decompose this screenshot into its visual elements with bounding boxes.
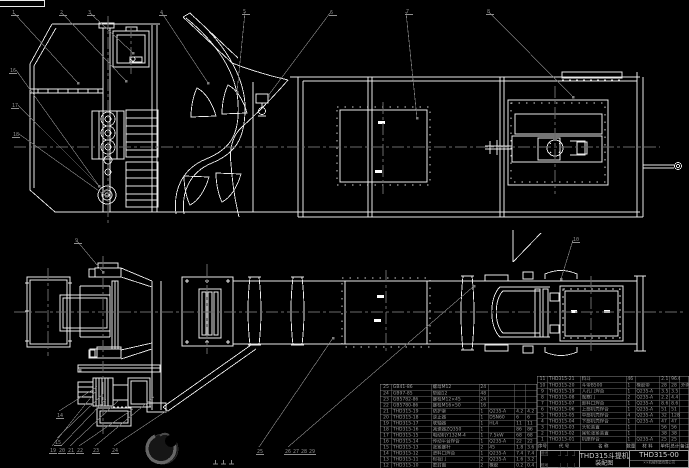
bom-row: 20THD315-18逆止器1DSN6066 [381, 415, 537, 421]
bom-row: 15THD315-13张紧螺杆2451.83.6 [381, 445, 537, 451]
callout-number: 26 [285, 449, 291, 455]
bom-row: 5THD315-05中部机壳焊合4Q235-A32128 [538, 413, 689, 419]
callout-number: 22 [77, 448, 83, 454]
bom-cell: 螺母M12 [431, 385, 479, 391]
border-ticks [213, 460, 234, 464]
bom-row: 3THD315-03头轮装置15656 [538, 425, 689, 431]
bom-cell: THD315-21 [547, 377, 580, 383]
bom-cell: 料斗 [580, 377, 626, 383]
bom-row: 13THD315-11检视门2Q235-A1.63.2 [381, 457, 537, 463]
callout-number: 7 [406, 9, 409, 15]
callout-number: 16 [10, 68, 16, 74]
callout-number: 27 [293, 449, 299, 455]
bom-row: 1THD315-01机座焊合1Q235-A2525 [538, 437, 689, 443]
bom-row: 11THD315-21料斗462.196.6 [538, 377, 689, 383]
bom-cell: 0.4 [526, 463, 537, 468]
sheet-border-corner [0, 0, 45, 7]
callout-number: 14 [57, 413, 63, 419]
bom-cell: 2.1 [660, 377, 670, 383]
bom-cell: 46 [626, 377, 635, 383]
bom-row: 10THD315-20斗带B5001橡胶带2828外购 [538, 383, 689, 389]
bom-cell: 2 [479, 463, 488, 468]
callout-number: 17 [12, 103, 18, 109]
title-main-cell: THD315斗提机 装配图 [579, 451, 630, 467]
callout-number: 19 [50, 448, 56, 454]
signature-cell [572, 451, 575, 456]
cad-drawing-sheet: 1234567891016171814151920212223242526272… [0, 0, 689, 468]
bom-row: 18THD315-16减速器ZQ35018686 [381, 427, 537, 433]
drawing-number: THD315-00 [630, 451, 688, 460]
tail-takeup-section [485, 72, 682, 217]
bom-cell [526, 385, 537, 391]
callout-number: 20 [59, 448, 65, 454]
bom-row: 23GB5782-86螺栓M12×4524 [381, 397, 537, 403]
callout-number: 10 [573, 237, 579, 243]
bom-cell [488, 385, 515, 391]
callout-number: 5 [243, 9, 246, 15]
callout-number: 3 [88, 10, 91, 16]
callout-number: 25 [257, 449, 263, 455]
bom-table-left: 25GB41-86螺母M122424GB97-85垫圈124823GB5782-… [380, 384, 537, 468]
signature-cell [558, 451, 561, 456]
signature-cell: 设计 [541, 451, 548, 456]
callout-number: 2 [60, 10, 63, 16]
callout-number: 6 [330, 10, 333, 16]
bom-cell: 11 [538, 377, 548, 383]
centerlines [14, 16, 686, 434]
callout-number: 28 [301, 449, 307, 455]
bom-cell: 96.6 [670, 377, 680, 383]
callout-number: 18 [13, 132, 19, 138]
bom-row: 4THD315-04下部机壳焊合1Q235-A4747 [538, 419, 689, 425]
bom-cell [635, 377, 660, 383]
bom-row: 2THD315-02尾轮张紧装置13838 [538, 431, 689, 437]
signature-cell [572, 463, 575, 468]
bom-row: 24GB97-85垫圈1248 [381, 391, 537, 397]
bom-cell: 橡胶 [488, 463, 515, 468]
callout-number: 8 [487, 9, 490, 15]
top-view-elevation [30, 13, 682, 262]
bom-row: 21THD315-19防护罩1Q235-A4.24.2 [381, 409, 537, 415]
bom-cell: 24 [479, 385, 488, 391]
signature-cell: 校对 [541, 463, 548, 468]
bom-row: 25GB41-86螺母M1224 [381, 385, 537, 391]
signature-grid: 设计校对审核 [541, 451, 579, 467]
bom-row: 9THD315-19人孔门焊合1Q235-A3.53.5 [538, 389, 689, 395]
bom-row: 17THD315-15电动机Y132M-417.5kW6868 [381, 433, 537, 439]
bom-row: 8THD315-08观察门2Q235-A2.24.4 [538, 395, 689, 401]
signature-cell [558, 463, 561, 468]
bom-cell: THD315-10 [391, 463, 431, 468]
callout-number: 9 [75, 238, 78, 244]
bom-row: 7THD315-07卸料口焊合1Q235-A8.68.6 [538, 401, 689, 407]
bom-table-right: 11THD315-21料斗462.196.610THD315-20斗带B5001… [537, 376, 689, 451]
bom-cell: GB41-86 [391, 385, 431, 391]
drive-unit-plan [78, 347, 160, 426]
callout-number: 15 [55, 440, 61, 446]
bom-cell [515, 385, 526, 391]
watermark-moon-logo [147, 434, 178, 464]
callout-number: 21 [68, 448, 74, 454]
callout-number: 4 [160, 10, 163, 16]
title-block: 设计校对审核 THD315斗提机 装配图 THD315-00 ××机械制造有限公… [540, 450, 689, 468]
title-number-cell: THD315-00 ××机械制造有限公司 [630, 451, 688, 467]
bom-row: 19THD315-17联轴器1HL41111 [381, 421, 537, 427]
product-title: THD315斗提机 [580, 452, 629, 460]
bom-cell: 25 [381, 385, 392, 391]
callout-number: 1 [12, 10, 15, 16]
bom-cell [680, 377, 689, 383]
bom-cell: 0.2 [515, 463, 526, 468]
bom-cell: 12 [381, 463, 392, 468]
bom-row: 14THD315-12进料口焊合1Q235-A7.47.4 [381, 451, 537, 457]
bom-row: 6THD315-06上部机壳焊合1Q235-A5151 [538, 407, 689, 413]
bom-cell: 密封圈 [431, 463, 479, 468]
company-name: ××机械制造有限公司 [630, 460, 688, 465]
signature-cell [565, 451, 568, 456]
callout-number: 24 [112, 448, 118, 454]
callout-number: 23 [93, 448, 99, 454]
signature-cell [565, 463, 568, 468]
drawing-type-label: 装配图 [595, 460, 613, 467]
bom-row: 12THD315-10密封圈2橡胶0.20.4 [381, 463, 537, 468]
bom-row: 16THD315-14传动平台焊合1Q235-A2222 [381, 439, 537, 445]
callout-number: 29 [309, 449, 315, 455]
bom-row: 22GB5780-86螺栓M16×5016 [381, 403, 537, 409]
boot-plan [485, 271, 646, 356]
elevator-buckets [184, 85, 247, 205]
